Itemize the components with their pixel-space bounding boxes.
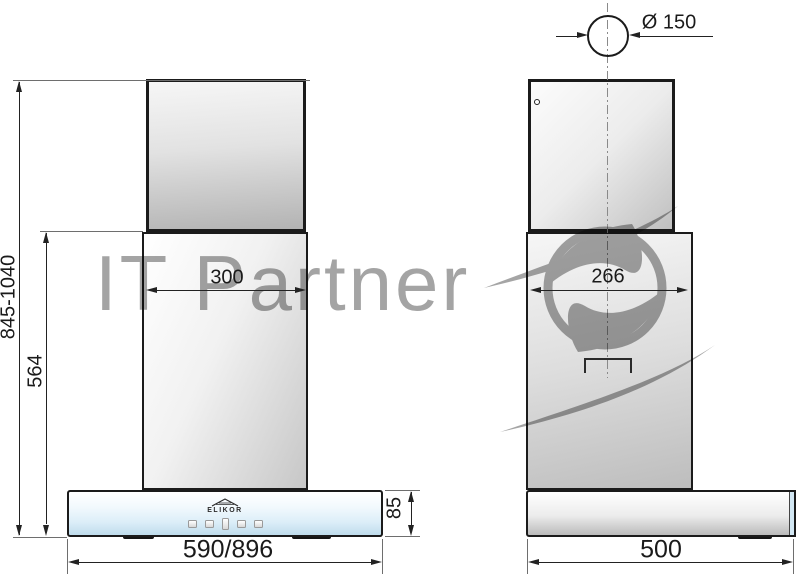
dimension-line <box>640 36 713 37</box>
technical-drawing: ELIKOR IT Partner <box>0 0 800 574</box>
arrow-right-icon <box>782 559 793 565</box>
arrow-down-icon <box>43 525 49 536</box>
dimension-line <box>540 290 678 291</box>
side-chimney-depth-label: 266 <box>591 266 624 289</box>
arrow-right-icon <box>577 32 588 38</box>
arrow-left-icon <box>146 287 157 293</box>
extension-line <box>793 539 794 574</box>
arrow-down-icon <box>16 525 22 536</box>
front-body-height-label: 85 <box>384 497 407 519</box>
arrow-up-icon <box>43 232 49 243</box>
touch-display-icon <box>222 518 229 530</box>
extension-line <box>382 539 383 574</box>
arrow-left-icon <box>528 559 539 565</box>
mounting-bracket-icon <box>584 358 632 360</box>
brand-logo: ELIKOR <box>207 498 242 514</box>
brand-name: ELIKOR <box>207 507 242 514</box>
arrow-right-icon <box>677 287 688 293</box>
watermark-text: IT Partner <box>95 244 470 322</box>
side-body-depth-label: 500 <box>640 536 682 565</box>
arrow-up-icon <box>408 491 414 502</box>
front-hood-body: ELIKOR <box>67 490 383 537</box>
touch-button-icon <box>188 520 197 528</box>
arrow-left-icon <box>629 32 640 38</box>
front-chimney-upper <box>146 79 306 232</box>
arrow-right-icon <box>371 559 382 565</box>
front-body-width-label: 590/896 <box>183 536 273 565</box>
front-chimney-width-label: 300 <box>210 267 243 290</box>
extension-line <box>13 537 67 538</box>
front-duct-height-label: 564 <box>25 354 48 387</box>
extension-line <box>527 539 528 574</box>
dimension-line <box>556 36 578 37</box>
screw-dot-icon <box>534 99 540 105</box>
duct-circle <box>587 15 629 57</box>
mounting-bracket-icon <box>630 358 632 373</box>
dimension-line <box>156 290 296 291</box>
extension-line <box>385 490 420 491</box>
arrow-left-icon <box>68 559 79 565</box>
arrow-left-icon <box>530 287 541 293</box>
touch-button-icon <box>205 520 214 528</box>
mounting-bracket-icon <box>584 358 586 373</box>
extension-line <box>385 536 420 537</box>
front-total-height-label: 845-1040 <box>0 255 21 340</box>
touch-button-icon <box>254 520 263 528</box>
arrow-right-icon <box>295 287 306 293</box>
extension-line <box>67 539 68 574</box>
watermark-logo-icon <box>482 192 732 452</box>
side-hood-body <box>526 490 796 537</box>
extension-line <box>13 80 310 81</box>
touch-button-icon <box>237 520 246 528</box>
arrow-up-icon <box>16 81 22 92</box>
arrow-down-icon <box>408 525 414 536</box>
hood-front-panel: ELIKOR <box>69 492 381 535</box>
extension-line <box>40 231 143 232</box>
side-duct-diameter-label: Ø 150 <box>642 12 696 35</box>
brand-roof-icon <box>210 498 240 507</box>
touch-controls <box>188 518 263 530</box>
glass-front-edge <box>789 492 794 535</box>
